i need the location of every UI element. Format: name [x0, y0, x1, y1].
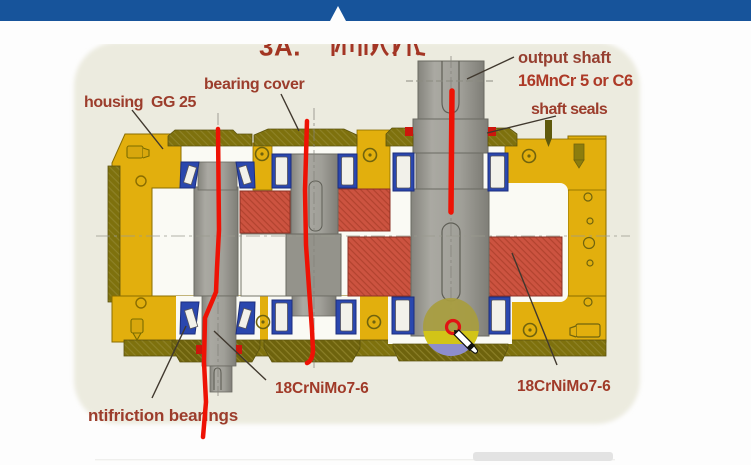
svg-text:16MnCr 5 or C6: 16MnCr 5 or C6 — [518, 72, 633, 90]
svg-text:output shaft: output shaft — [518, 49, 612, 67]
svg-text:18CrNiMo7-6: 18CrNiMo7-6 — [275, 380, 369, 397]
svg-text:shaft seals: shaft seals — [531, 101, 608, 118]
svg-text:ntifriction bearings: ntifriction bearings — [88, 406, 238, 425]
svg-text:bearing cover: bearing cover — [204, 76, 305, 93]
svg-text:18CrNiMo7-6: 18CrNiMo7-6 — [517, 378, 611, 395]
svg-text:housing GG 25: housing GG 25 — [84, 94, 196, 111]
